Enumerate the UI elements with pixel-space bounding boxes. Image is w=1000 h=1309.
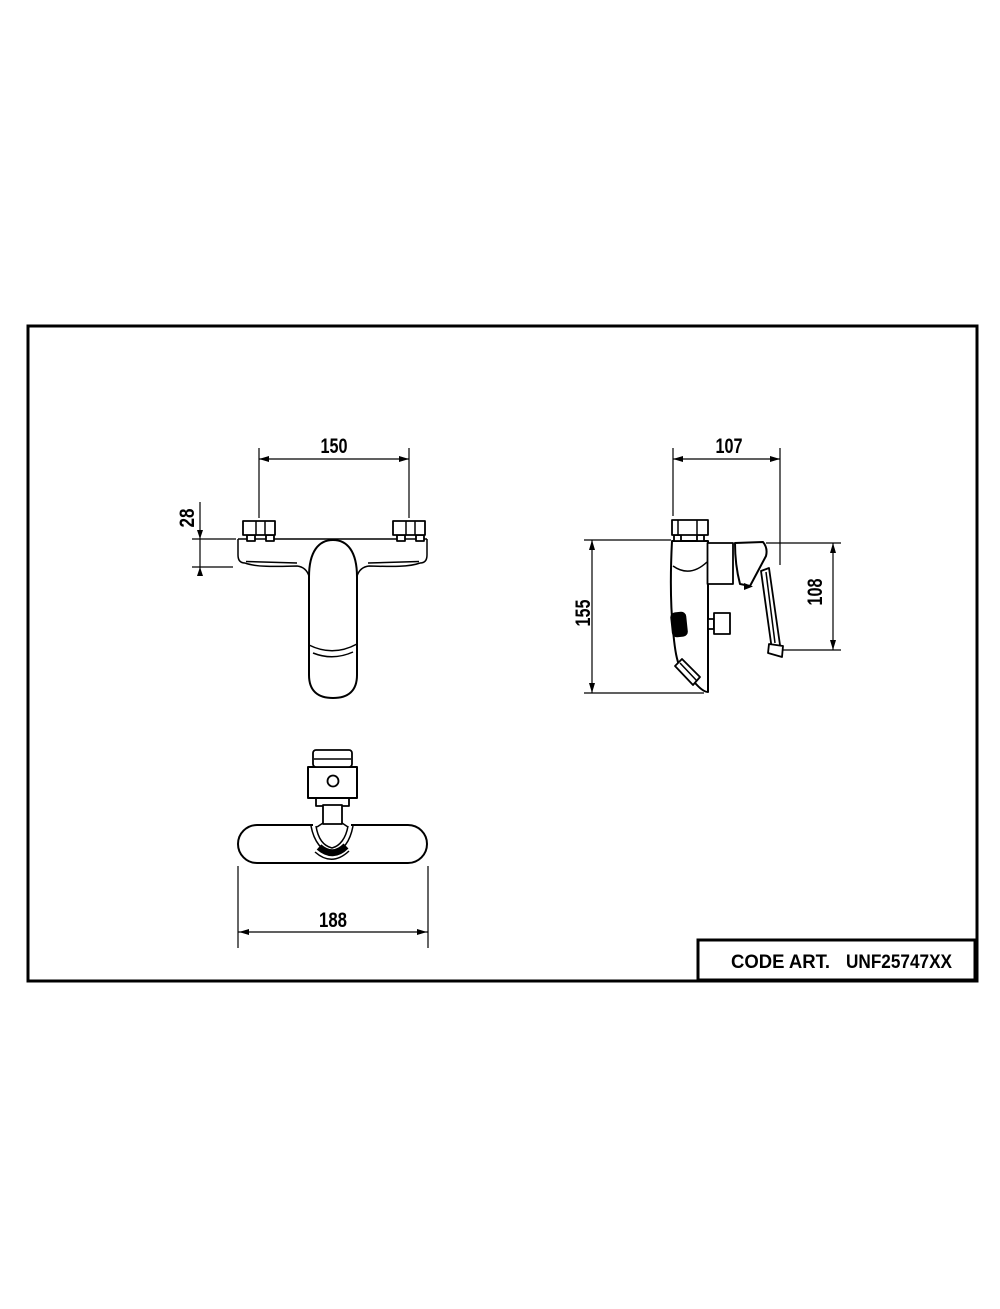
drawing-sheet: 150 28 bbox=[0, 0, 1000, 1309]
side-black-inlet bbox=[670, 611, 689, 638]
side-handle bbox=[708, 542, 784, 657]
dim-108-label: 108 bbox=[804, 578, 827, 605]
dim-28-label: 28 bbox=[176, 508, 199, 527]
side-view: 107 155 bbox=[572, 435, 841, 693]
front-handle bbox=[309, 540, 357, 698]
bottom-handle-block bbox=[308, 750, 357, 798]
dim-28: 28 bbox=[176, 502, 236, 576]
handle-screw-hole bbox=[328, 776, 339, 787]
technical-drawing: 150 28 bbox=[0, 0, 1000, 1309]
dim-150-label: 150 bbox=[321, 435, 348, 458]
side-outlet-connector bbox=[714, 613, 730, 634]
dim-188: 188 bbox=[238, 866, 428, 948]
hex-nut-right bbox=[393, 521, 425, 541]
side-hex-nut bbox=[672, 520, 708, 541]
dim-107-label: 107 bbox=[716, 435, 743, 458]
bottom-view: 188 bbox=[238, 750, 428, 948]
hex-nut-left bbox=[243, 521, 275, 541]
bottom-body-capsule bbox=[238, 825, 427, 863]
dim-150: 150 bbox=[259, 435, 409, 518]
title-block: CODE ART. UNF25747XX bbox=[698, 940, 975, 980]
drawing-border bbox=[28, 326, 977, 981]
article-code: UNF25747XX bbox=[846, 952, 952, 973]
front-view: 150 28 bbox=[176, 435, 427, 698]
dim-155-label: 155 bbox=[572, 599, 595, 626]
side-lever-tip bbox=[768, 644, 783, 657]
dim-188-label: 188 bbox=[319, 909, 347, 932]
title-block-label: CODE ART. bbox=[731, 952, 830, 973]
